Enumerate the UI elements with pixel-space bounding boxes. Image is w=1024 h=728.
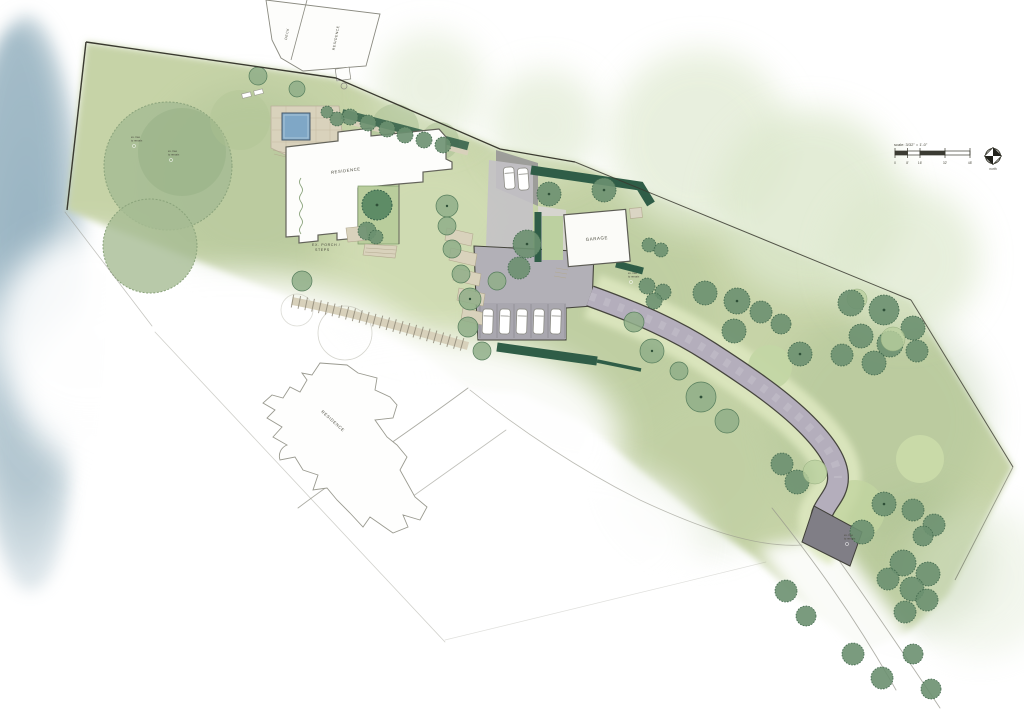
- scale-tick: 48': [968, 161, 973, 165]
- svg-text:to remain: to remain: [168, 153, 180, 157]
- site-plan-drawing: DECK RESIDENCE RESIDENCE RESIDENCE EX. P…: [0, 0, 1024, 728]
- scale-tick: 0: [894, 161, 896, 165]
- north-label: north: [989, 167, 996, 171]
- north-arrow: north: [985, 148, 1002, 172]
- scale-ticks: 0 8' 16' 32' 48': [894, 161, 972, 165]
- porch-label-line1: EX. PORCH /: [312, 243, 340, 247]
- canopy-tree-5: [210, 90, 270, 150]
- svg-text:ex. tree: ex. tree: [628, 271, 637, 275]
- car: [550, 309, 561, 334]
- svg-text:to remain: to remain: [628, 275, 640, 279]
- car: [499, 309, 510, 334]
- lawn-circle-2: [896, 435, 944, 483]
- svg-text:ex. tree: ex. tree: [844, 533, 853, 537]
- svg-text:ex. tree: ex. tree: [131, 135, 140, 139]
- site-plan: DECK RESIDENCE RESIDENCE RESIDENCE EX. P…: [0, 0, 1024, 728]
- svg-text:to remain: to remain: [131, 139, 143, 143]
- svg-text:ex. tree: ex. tree: [168, 149, 177, 153]
- car: [503, 167, 515, 190]
- canopy-tree-2: [103, 199, 197, 293]
- scale-label: scale: 3/32" = 1'-0": [894, 142, 928, 147]
- porch-label-line2: STEPS: [315, 248, 330, 252]
- svg-text:to remain: to remain: [844, 537, 856, 541]
- car: [516, 309, 527, 334]
- scale-tick: 32': [943, 161, 948, 165]
- pool: [282, 113, 310, 140]
- scale-bar: scale: 3/32" = 1'-0" 0 8' 16' 32' 48': [894, 142, 972, 165]
- scale-tick: 16': [918, 161, 923, 165]
- car: [482, 309, 493, 334]
- car: [517, 168, 529, 191]
- car: [533, 309, 544, 334]
- garage-lawn-panel: [542, 216, 563, 260]
- garage-patio: [630, 207, 643, 218]
- scale-tick: 8': [906, 161, 909, 165]
